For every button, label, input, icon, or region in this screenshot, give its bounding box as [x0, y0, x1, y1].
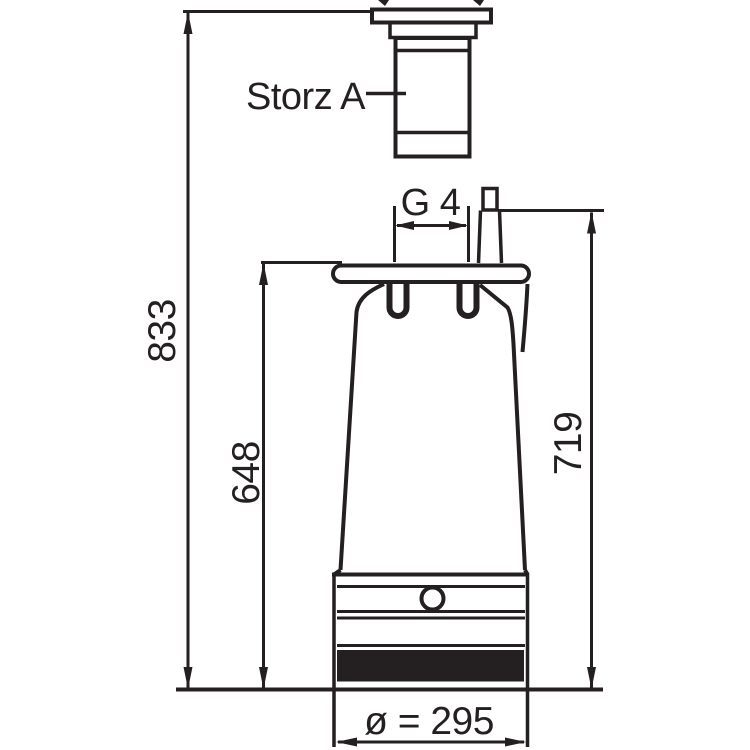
label-right-height: 719: [547, 412, 590, 476]
arrow-up-648-icon: [259, 263, 268, 285]
storz-coupling: [366, 10, 491, 157]
line-art: [176, 10, 604, 748]
lifting-loop-left: [390, 283, 407, 316]
label-diameter: ø = 295: [364, 700, 494, 743]
body-left-side: [341, 284, 385, 570]
arrow-down-719-icon: [587, 667, 596, 689]
vent-pipe-tip: [483, 189, 497, 211]
arrow-right-diameter-icon: [505, 738, 526, 747]
label-storz: Storz A: [246, 76, 366, 118]
label-flange-height: 648: [225, 441, 268, 505]
coupling-barrel: [396, 38, 470, 157]
pump-dimension-drawing: Storz A G 4 833 648 719 ø = 295: [0, 0, 750, 750]
coupling-step: [390, 23, 476, 38]
arrow-left-diameter-icon: [336, 738, 357, 747]
drawing-canvas: Storz A G 4 833 648 719 ø = 295: [0, 0, 750, 750]
vent-pipe: [479, 189, 502, 264]
arrow-down-648-icon: [259, 667, 268, 689]
base-plug-circle: [422, 588, 444, 610]
arrow-up-719-icon: [587, 212, 596, 234]
arrow-down-833-icon: [184, 667, 193, 689]
label-total-height: 833: [141, 299, 184, 363]
dimension-flange-height: [261, 263, 342, 689]
pump-flange: [333, 266, 529, 283]
labels: Storz A G 4 833 648 719 ø = 295: [141, 76, 590, 743]
strainer-band: [337, 650, 524, 682]
pump-body: [341, 284, 528, 570]
lifting-loops: [390, 283, 477, 316]
label-thread: G 4: [401, 182, 461, 224]
arrow-up-833-icon: [184, 12, 193, 34]
body-right-side: [480, 285, 525, 570]
crop-mark-right-icon: [473, 0, 484, 6]
lifting-loop-right: [460, 283, 477, 316]
crop-mark-left-icon: [378, 0, 389, 6]
vent-pipe-left-side: [479, 211, 481, 264]
coupling-flange: [372, 10, 491, 23]
vent-pipe-right-side: [500, 211, 502, 264]
body-right-outer-edge: [523, 284, 528, 352]
